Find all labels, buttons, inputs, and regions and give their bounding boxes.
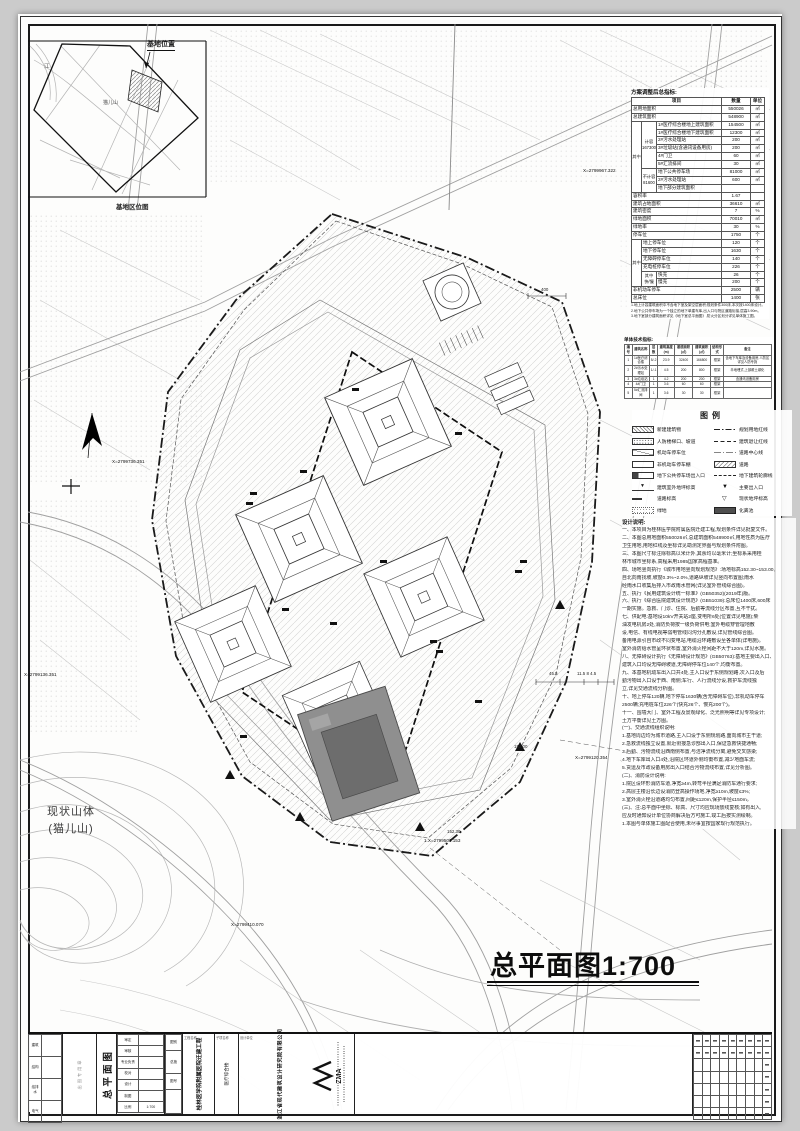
unit-table-cell: 4.5 (658, 366, 675, 377)
metrics-item: 地下部分建筑面积 (656, 184, 721, 192)
metrics-header-row: 项目数量单位 (632, 98, 765, 106)
metrics-note-line: 3.地下室部分建筑面积详见《地下室总平面图》,防火分区划分详见单体施工图。 (631, 314, 767, 319)
stamp-label: 出图专用章 (77, 1059, 83, 1090)
design-note-line: 五、执行《民用建筑设计统一标准》(GB50352)(2019年)版。 (622, 591, 796, 599)
dashdot-line-icon (714, 426, 736, 433)
legend-label: 建筑退让红线 (739, 438, 768, 445)
metrics-qty: 600 (722, 176, 751, 184)
signature-grid-cell (702, 1035, 711, 1047)
legend-label: 主要出入口 (739, 484, 763, 491)
legend-item: 建筑室外地坪标高 (632, 482, 710, 494)
metrics-qty: 200 (722, 137, 751, 145)
metrics-subgroup: 计容 167300 (642, 121, 657, 168)
drawing-title: 总平面图1:700 (490, 944, 676, 983)
signature-grid-cell (763, 1059, 772, 1071)
design-note-line: 1.本图与单体施工图配合使用,未尽事宜按国家现行规范执行。 (622, 821, 796, 829)
metrics-item: 总用地面积 (632, 105, 722, 113)
signature-grid-cell (694, 1083, 703, 1095)
dimension-label: 45.5 (549, 671, 558, 676)
dimension-label: 11.5 8 4.5 (577, 671, 596, 676)
legend-label: 地下建筑轮廓线 (739, 472, 773, 479)
coordinate-label: X=2799410.070 (231, 922, 264, 927)
metrics-unit: ㎡ (751, 176, 765, 184)
plain-rect-icon (632, 461, 654, 468)
signature-grid-row (694, 1095, 772, 1107)
signature-grid-cell (719, 1095, 728, 1107)
signature-grid-cell (763, 1108, 772, 1120)
signoff-value (42, 1079, 62, 1101)
design-note-line: 应及时通知设计单位协商解决后方可施工,竣工后按实测绘制。 (622, 813, 796, 821)
metrics-item: 非机动车停车 (632, 287, 722, 295)
legend-item: 现状地坪标高 (714, 493, 792, 505)
review-value (138, 1046, 163, 1057)
unit-table-cell: 含地下车库及设备用房,人防区详见人防专篇 (723, 355, 771, 366)
metrics-unit: 个 (751, 263, 765, 271)
signature-grid-cell (745, 1035, 754, 1047)
signature-grid (693, 1034, 772, 1120)
unit-table-header: 备注 (723, 345, 771, 356)
item-cell: 子项名称 医疗综合楼 (214, 1034, 238, 1114)
legend-label: 地下公共停车场出入口 (657, 472, 705, 479)
drawing-name: 总平面图 (100, 1049, 114, 1099)
metrics-qty: 226 (722, 263, 751, 271)
metrics-item: 容积率 (632, 192, 722, 200)
metrics-subgroup: 其中 快/慢 (642, 271, 657, 287)
unit-table-cell: 2#污水处理站 (632, 366, 649, 377)
metrics-unit: ㎡ (751, 153, 765, 161)
metrics-qty: 154500 (722, 121, 751, 129)
signature-grid-cell (711, 1071, 720, 1083)
unit-table-header: 层数 (649, 345, 657, 356)
signoff-row: 给排水 (29, 1079, 62, 1101)
signature-grid-cell (745, 1095, 754, 1107)
unit-table-cell: 23.9 (658, 355, 675, 366)
unit-table-title: 单体技术指标: (624, 337, 774, 343)
design-notes-lines: 一、本项目为桂林医学院附属医院迁建工程,规划条件详见批复文件。二、本图总用地面积… (622, 527, 796, 829)
item-name: 医疗综合楼 (224, 1063, 230, 1086)
legend-item: 道路 (714, 459, 792, 471)
metrics-item: 快充 (656, 271, 721, 279)
design-note-line: 六、执行《综合医院建筑设计规范》(GB51039):总床位1400床,600床 (622, 598, 796, 606)
design-note-line: (二)、消防设计说明: (622, 773, 796, 781)
metrics-unit: 个 (751, 247, 765, 255)
unit-table-row: 55#汇流排间13.63030框架 (625, 388, 772, 399)
metrics-qty: 1630 (722, 247, 751, 255)
design-note-line: 七、供配电:基地设10kV开关站2座,变电所6处(位置详见电施);柴 (622, 614, 796, 622)
signature-grid-cell (711, 1108, 720, 1120)
metrics-qty: 60 (722, 153, 751, 161)
tri-open-icon (714, 495, 736, 502)
legend-title: 图例 (632, 410, 792, 421)
design-note-line: 卫生用地,用地红线及坐标详见勘测定界图与规划条件附图。 (622, 543, 796, 551)
legend-label: 道路中心线 (739, 449, 763, 456)
legend-label: 非机动车停车棚 (657, 461, 691, 468)
metrics-qty: 1400 (722, 295, 751, 303)
legend-label: 机动车停车位 (657, 449, 686, 456)
coordinate-label: X=2799136.351 (24, 672, 57, 677)
design-note-line: 八、无障碍设计执行《无障碍设计规范》(GB50763):基地主要出入口、 (622, 654, 796, 662)
metrics-unit: ㎡ (751, 121, 765, 129)
center-line-icon (714, 449, 736, 456)
metrics-unit: ㎡ (751, 216, 765, 224)
hatch-rect-icon (632, 426, 654, 433)
class-grid: 图别总施图号 (165, 1034, 182, 1114)
legend-item: 人防楼梯口、坡道 (632, 436, 710, 448)
unit-table-header-row: 编号建筑名称层数建筑高度(m)基底面积(㎡)建筑面积(㎡)结构形式备注 (625, 345, 772, 356)
company-name: 浙江省现代建筑设计研究院有限公司 (277, 1028, 284, 1119)
metrics-row: 地下停车位1630个 (632, 247, 765, 255)
class-label: 图号 (166, 1074, 182, 1090)
signoff-row: 电气 (29, 1101, 62, 1123)
class-cell: 图别总施图号 (164, 1034, 182, 1114)
metrics-group: 其中 (632, 240, 642, 287)
unit-table-header: 建筑高度(m) (658, 345, 675, 356)
metrics-row: 绿地率30% (632, 224, 765, 232)
slope-mark-icon (632, 495, 654, 502)
signature-grid-cell (702, 1071, 711, 1083)
dimension-label: 153.00 (514, 744, 527, 749)
metrics-item: 2#污水处理站 (656, 176, 721, 184)
signature-grid-cell (719, 1108, 728, 1120)
signoff-value (42, 1101, 62, 1123)
title-underline (487, 981, 699, 983)
signature-grid-cell (719, 1083, 728, 1095)
unit-table-cell: 2 (625, 366, 633, 377)
inset-area-label: 基地区位图 (116, 201, 149, 211)
inset-map-title: 基地位置 (147, 39, 175, 51)
signature-grid-cell (719, 1047, 728, 1059)
unit-table-cell: 5/-2 (649, 355, 657, 366)
review-row: 设计 (118, 1079, 164, 1090)
metrics-qty (722, 184, 751, 192)
metrics-qty: 2500 (722, 287, 751, 295)
unit-table-cell: 框架 (711, 366, 723, 377)
review-value (138, 1090, 163, 1101)
metrics-unit: % (751, 208, 765, 216)
unit-table-panel: 单体技术指标: 编号建筑名称层数建筑高度(m)基底面积(㎡)建筑面积(㎡)结构形… (624, 337, 774, 399)
signoff-cell: 建筑结构给排水电气 (28, 1034, 62, 1114)
signature-grid-cell (719, 1059, 728, 1071)
design-note-line: 自北向南找坡,坡度0.3%~2.0%,道路纵坡详见竖向布置图;雨水 (622, 575, 796, 583)
review-label: 制图 (118, 1090, 139, 1101)
tri-solid-icon (714, 484, 736, 491)
signature-grid-cell (694, 1059, 703, 1071)
design-note-line: 十、地上停车120辆,地下停车1630辆(含无障碍车位),非机动车停车 (622, 694, 796, 702)
review-label: 设计 (118, 1079, 139, 1090)
review-row: 校对 (118, 1068, 164, 1079)
metrics-row: 总床位1400张 (632, 295, 765, 303)
metrics-unit: ㎡ (751, 105, 765, 113)
metrics-item: 4#门卫 (656, 153, 721, 161)
signature-grid-cell (754, 1071, 763, 1083)
signature-grid-row (694, 1108, 772, 1120)
metrics-header: 单位 (751, 98, 765, 106)
unit-table-header: 结构形式 (711, 345, 723, 356)
legend-label: 绿地 (657, 507, 667, 514)
signature-grid-cell (694, 1108, 703, 1120)
design-note-line: 建筑入口均设无障碍坡道,无障碍停车位140个,均衡布置。 (622, 662, 796, 670)
metrics-qty: 200 (722, 145, 751, 153)
design-note-line: 一期实施。急救、门诊、住院、后勤等流线分区布置,互不干扰。 (622, 606, 796, 614)
unit-table-header: 基底面积(㎡) (675, 345, 693, 356)
inset-location-map (28, 41, 206, 197)
review-value: 1:700 (138, 1102, 163, 1113)
design-note-line: 1.基地周边均为城市道路,主入口设于东侧规划路,面向城市主干道; (622, 733, 796, 741)
metrics-unit: 个 (751, 255, 765, 263)
review-label: 比例 (118, 1102, 139, 1113)
metrics-unit: ㎡ (751, 145, 765, 153)
unit-table-row: 33#垃圾站14.2200200框架含通讯设备用房 (625, 376, 772, 382)
metrics-unit (751, 192, 765, 200)
coordinate-label: X=2799967.322 (583, 168, 616, 173)
review-value (138, 1068, 163, 1079)
unit-table-cell: 3#垃圾站 (632, 376, 649, 382)
metrics-qty: 548900 (722, 113, 751, 121)
unit-table-cell: 200 (675, 366, 693, 377)
metrics-row: 非机动车停车2500辆 (632, 287, 765, 295)
metrics-unit: % (751, 224, 765, 232)
metrics-header: 数量 (722, 98, 751, 106)
signature-grid-cell (694, 1035, 703, 1047)
metrics-qty: 36610 (722, 200, 751, 208)
signature-grid-cell (728, 1095, 737, 1107)
metrics-item: 无障碍停车位 (642, 255, 722, 263)
signature-grid-cell (702, 1059, 711, 1071)
unit-table-cell: 1#医疗综合楼 (632, 355, 649, 366)
legend-item: 地下公共停车场出入口 (632, 470, 710, 482)
design-note-line: 5.货运及市政设备用房出入口结合污物流线布置,详见分析图。 (622, 765, 796, 773)
unit-table-cell: 800 (693, 366, 711, 377)
design-note-line: 备用电源引自市政不同变电站,电缆沿环路敷设至各单体(详电施)。 (622, 638, 796, 646)
review-grid: 审定审核专业负责校对设计制图比例1:700 (117, 1034, 164, 1113)
signature-grid-row (694, 1083, 772, 1095)
unit-table-cell: 5 (625, 388, 633, 399)
entry-rect-icon (632, 472, 654, 479)
legend-item: 道路标高 (632, 493, 710, 505)
dash-line-icon (714, 438, 736, 445)
signature-grid-row (694, 1035, 772, 1047)
signature-grid-cell (711, 1083, 720, 1095)
legend-label: 人防楼梯口、坡道 (657, 438, 695, 445)
class-value-row (166, 1090, 182, 1114)
legend-item: 主要出入口 (714, 482, 792, 494)
signature-grid-cell (745, 1083, 754, 1095)
design-note-line: 4.地下车库出入口4处,沿院区环道外侧均衡布置,减少地面车流; (622, 757, 796, 765)
signature-grid-cell (745, 1071, 754, 1083)
design-note-line: 油发电机房2处,消防负荷按一级负荷供电;室外电缆穿管埋地敷 (622, 622, 796, 630)
metrics-group: 其中 (632, 121, 642, 192)
legend-item: 建筑退让红线 (714, 436, 792, 448)
unit-table-cell: 166800 (693, 355, 711, 366)
item-label: 子项名称 (216, 1035, 229, 1040)
review-value (138, 1035, 163, 1046)
company-cert-lines (337, 1042, 339, 1106)
legend-label: 化粪池 (739, 507, 753, 514)
dot-rect-icon (632, 438, 654, 445)
legend-label: 道路标高 (657, 495, 676, 502)
signoff-label: 建筑 (29, 1035, 42, 1057)
metrics-unit: ㎡ (751, 161, 765, 169)
design-note-line: 2.高层主楼沿长边设消防登高操作场地,净宽≥10m,坡度≤3%; (622, 789, 796, 797)
review-label: 审核 (118, 1046, 139, 1057)
metrics-qty: 1750 (722, 232, 751, 240)
metrics-item: 2#污水处理站 (656, 137, 721, 145)
signature-grid-cell (763, 1047, 772, 1059)
signature-grid-cell (694, 1071, 703, 1083)
signature-grid-cell (737, 1108, 746, 1120)
signature-grid-cell (719, 1035, 728, 1047)
review-row: 制图 (118, 1090, 164, 1101)
unit-table-cell: 32400 (675, 355, 693, 366)
metrics-row: 不计容 81600地下公共停车场81000㎡ (632, 169, 765, 177)
signature-grid-cell (719, 1071, 728, 1083)
review-cell: 审定审核专业负责校对设计制图比例1:700 (116, 1034, 164, 1114)
metrics-row: 容积率1.67 (632, 192, 765, 200)
metrics-qty: 70010 (722, 216, 751, 224)
metrics-qty: 200 (722, 279, 751, 287)
metrics-unit: 个 (751, 279, 765, 287)
design-note-line: 经雨水口收集后排入市政雨水管网(详见室外管线综合图)。 (622, 583, 796, 591)
legend-label: 道路 (739, 461, 749, 468)
unit-table-cell: 1 (649, 388, 657, 399)
signature-grid-cell (754, 1059, 763, 1071)
legend-right-column: 规划用地红线建筑退让红线道路中心线道路地下建筑轮廓线主要出入口现状地坪标高化粪池 (714, 424, 792, 516)
legend-label: 规划用地红线 (739, 426, 768, 433)
metrics-row: 绿地面积70010㎡ (632, 216, 765, 224)
metrics-table-notes: 1.地上计容建筑面积中不含地下室及架空层面积;规划条件300床,本次按1400床… (631, 303, 767, 319)
design-note-line: 3.后勤、污物流线沿西南侧布置,与洁净流线分离,避免交叉感染; (622, 749, 796, 757)
metrics-item: 绿地率 (632, 224, 722, 232)
metrics-unit: ㎡ (751, 129, 765, 137)
green-rect-icon (632, 507, 654, 514)
signoff-label: 电气 (29, 1101, 42, 1123)
metrics-unit (751, 184, 765, 192)
signature-grid-cell (737, 1047, 746, 1059)
metrics-item: 绿地面积 (632, 216, 722, 224)
metrics-qty: 26 (722, 271, 751, 279)
signoff-label: 给排水 (29, 1079, 42, 1101)
legend-left-column: 新建建筑物人防楼梯口、坡道机动车停车位非机动车停车棚地下公共停车场出入口建筑室外… (632, 424, 710, 516)
design-note-line: 室外消防给水管呈环状布置,室外消火栓间距不大于120m,详见水施。 (622, 646, 796, 654)
metrics-row: 充电桩停车位226个 (632, 263, 765, 271)
signature-grid-cell (728, 1083, 737, 1095)
stamp-cell: 出图专用章 (62, 1034, 96, 1114)
legend-label: 新建建筑物 (657, 426, 681, 433)
signature-grid-cell (702, 1083, 711, 1095)
dark-rect-icon (714, 507, 736, 514)
design-notes-title: 设计说明: (622, 518, 796, 526)
design-note-line: 十一、围墙大门、室外工程及景观绿化、泛光照明等详见专项设计; (622, 710, 796, 718)
metrics-unit: ㎡ (751, 200, 765, 208)
metrics-qty: 550026 (722, 105, 751, 113)
legend-label: 建筑室外地坪标高 (657, 484, 695, 491)
signature-grid-cell (728, 1059, 737, 1071)
unit-table-header: 建筑名称 (632, 345, 649, 356)
unit-table-cell (723, 388, 771, 399)
unit-table-cell: 3.6 (658, 388, 675, 399)
design-note-line: 2.急救流线独立设置,就近衔接急诊部出入口,保证急救快捷通畅; (622, 741, 796, 749)
metrics-row: 建筑占地面积36610㎡ (632, 200, 765, 208)
signoff-value (42, 1035, 62, 1057)
class-value: 总施 (166, 1050, 182, 1074)
project-name: 桂林医学院附属医院迁建工程 (195, 1038, 203, 1111)
drawing-page: 基地位置 基地区位图 江 猫儿山 现状山体(猫儿山) X=2799967.322… (0, 0, 800, 1131)
metrics-item: 1#医疗综合楼地下建筑面积 (656, 129, 721, 137)
metrics-item: 充电桩停车位 (642, 263, 722, 271)
metrics-unit: ㎡ (751, 137, 765, 145)
signature-grid-cell (702, 1095, 711, 1107)
signature-grid-cell (763, 1071, 772, 1083)
signoff-row: 建筑 (29, 1035, 62, 1057)
metrics-row: 其中 快/慢快充26个 (632, 271, 765, 279)
legend-item: 化粪池 (714, 505, 792, 517)
metrics-subgroup: 不计容 81600 (642, 169, 657, 193)
metrics-item: 地下停车位 (642, 247, 722, 255)
signature-grid-cell (692, 1034, 772, 1114)
signoff-value (42, 1057, 62, 1079)
design-note-line: 勤污物出入口设于西、南侧;车行、人行流线分设,救护车流线独 (622, 678, 796, 686)
legend-item: 绿地 (632, 505, 710, 517)
design-note-line: (三)、注:总平面中坐标、标高、尺寸均应现场放线复核;如有出入, (622, 805, 796, 813)
class-value-row: 总施 (166, 1050, 182, 1074)
signature-grid-cell (737, 1035, 746, 1047)
metrics-item: 总床位 (632, 295, 722, 303)
title-block: 建筑结构给排水电气 出图专用章 总平面图 审定审核专业负责校对设计制图比例1:7… (28, 1032, 772, 1112)
unit-table-cell: 5#汇流排间 (632, 388, 649, 399)
coordinate-label: X=2799120.354 (575, 755, 608, 760)
company-addr-lines (343, 1046, 345, 1102)
legend-item: 非机动车停车棚 (632, 459, 710, 471)
mountain-label: 现状山体(猫儿山) (16, 804, 126, 837)
metrics-item: 3#垃圾站(含通讯设备用房) (656, 145, 721, 153)
review-row: 审定 (118, 1035, 164, 1046)
metrics-unit: 辆 (751, 287, 765, 295)
metrics-row: 总建筑面积548900㎡ (632, 113, 765, 121)
metrics-item: 1#医疗综合楼地上建筑面积 (656, 121, 721, 129)
signature-grid-cell (737, 1095, 746, 1107)
metrics-qty: 30 (722, 161, 751, 169)
signature-grid-cell (754, 1047, 763, 1059)
metrics-unit: ㎡ (751, 113, 765, 121)
unit-table-row: 22#污水处理站1/-14.5200800框架半地埋式,上部覆土绿化 (625, 366, 772, 377)
signature-grid-cell (737, 1083, 746, 1095)
signoff-row: 结构 (29, 1057, 62, 1079)
metrics-item: 地下公共停车场 (656, 169, 721, 177)
review-label: 专业负责 (118, 1057, 139, 1068)
legend-item: 地下建筑轮廓线 (714, 470, 792, 482)
signature-grid-cell (728, 1071, 737, 1083)
signature-grid-cell (754, 1035, 763, 1047)
design-note-line: 立,详见交通流线分析图。 (622, 686, 796, 694)
metrics-panel: 方案调整后总指标: 项目数量单位 总用地面积550026㎡总建筑面积548900… (631, 88, 769, 319)
design-note-line: 林市城市坐标系,高程采用1985国家高程基准。 (622, 559, 796, 567)
metrics-unit: 个 (751, 271, 765, 279)
title-underline-2 (487, 985, 699, 986)
review-row: 审核 (118, 1046, 164, 1057)
unit-table-row: 11#医疗综合楼5/-223.932400166800框架含地下车库及设备用房,… (625, 355, 772, 366)
outline-dash-icon (714, 475, 736, 482)
signature-grid-cell (763, 1083, 772, 1095)
review-label: 审定 (118, 1035, 139, 1046)
signature-grid-cell (754, 1108, 763, 1120)
metrics-item: 总建筑面积 (632, 113, 722, 121)
signature-grid-cell (728, 1108, 737, 1120)
class-label-row: 图别 (166, 1035, 182, 1051)
design-note-line: 1.院区设环形消防车道,净宽≥4m,转弯半径满足消防车通行要求; (622, 781, 796, 789)
design-note-line: 土方平衡详见土方图。 (622, 718, 796, 726)
design-note-line: 九、本基地机动车出入口共4处,主入口设于东侧规划路,次入口及后 (622, 670, 796, 678)
unit-table-cell: 1 (625, 355, 633, 366)
